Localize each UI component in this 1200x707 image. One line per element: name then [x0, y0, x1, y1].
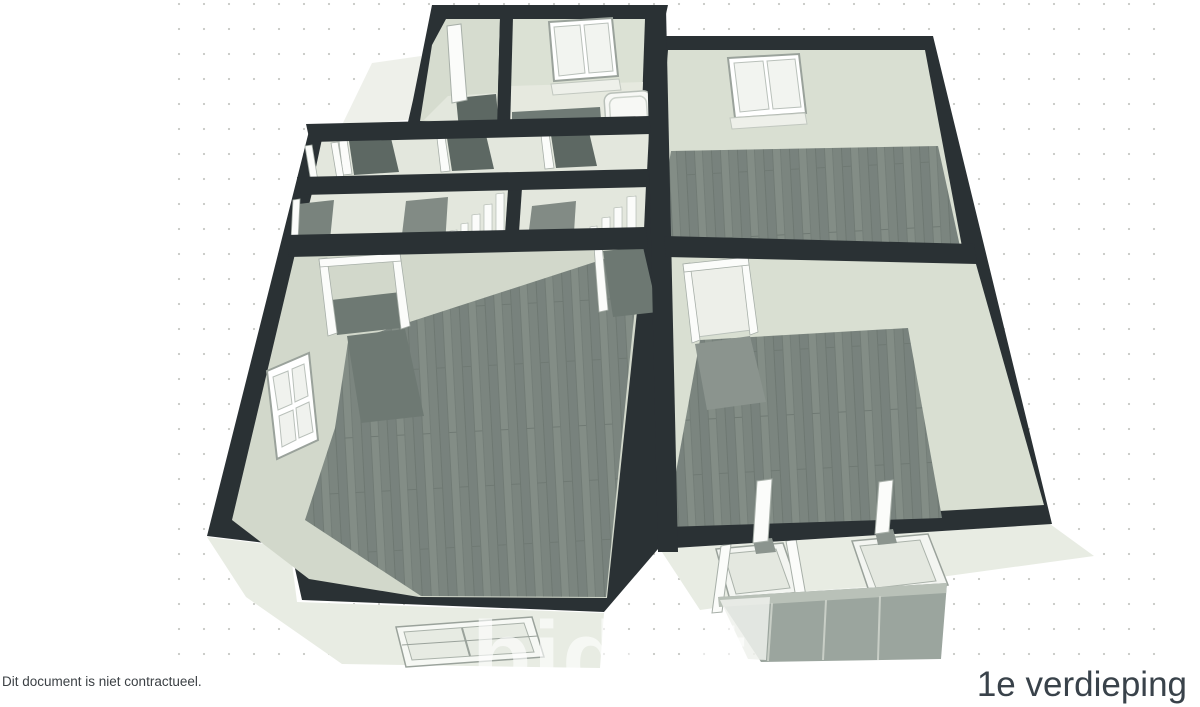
floor-title: 1e verdieping — [977, 665, 1187, 704]
watermark: biddit — [472, 601, 748, 707]
window-left-wall — [267, 353, 318, 459]
floorplan-canvas: biddit Dit document is niet contractueel… — [0, 0, 1200, 707]
landing-door-shadow — [296, 200, 334, 240]
room-top-right — [652, 50, 963, 252]
room-living-left — [232, 245, 658, 598]
window-top-right — [728, 54, 807, 129]
wood-floor — [654, 146, 961, 252]
screenshot-root: biddit Dit document is niet contractueel… — [0, 0, 1200, 707]
window-bathroom — [549, 18, 621, 95]
disclaimer-text: Dit document is niet contractueel. — [2, 674, 202, 689]
